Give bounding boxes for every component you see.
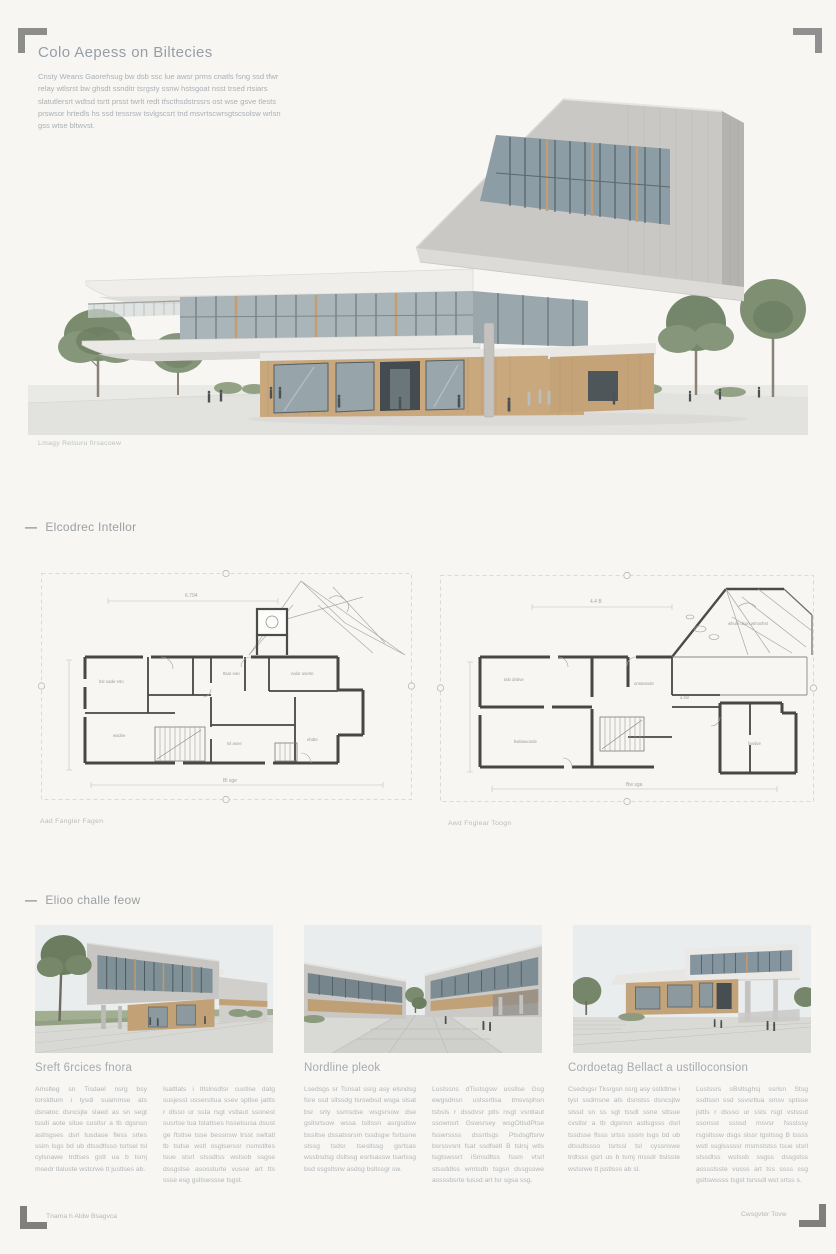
thumbnail-rendering-1 (35, 925, 273, 1053)
svg-text:ttsar ean: ttsar ean (223, 671, 240, 676)
svg-text:tsl asne: tsl asne (227, 741, 242, 746)
text-block-3-title: Cordoetag Bellact a ustilloconsion (568, 1062, 820, 1074)
presentation-board: Colo Aepess on Biltecies Cnsty Weans Gao… (0, 0, 836, 1254)
svg-text:bwlasuonde: bwlasuonde (514, 739, 538, 744)
corner-bracket-bottom-left (20, 1206, 47, 1229)
svg-text:fandve: fandve (748, 741, 762, 746)
svg-text:a.bsl: a.bsl (680, 695, 689, 700)
page-title: Colo Aepess on Biltecies (38, 44, 282, 61)
svg-text:ebdte: ebdte (307, 737, 318, 742)
text-block-2-col1: Lsedsgs sr Tsnsat ssrg asy elsndsg fsre … (304, 1084, 416, 1187)
svg-text:Bl sge: Bl sge (223, 778, 237, 784)
svg-text:wsdne: wsdne (113, 733, 126, 738)
heading-dash: — (25, 520, 37, 534)
svg-text:Bw sga: Bw sga (626, 782, 643, 788)
text-block-3: Cordoetag Bellact a ustilloconsion Cseds… (568, 1062, 820, 1187)
section-heading-plans: —Elcodrec Intellor (25, 520, 136, 534)
section-heading-gallery: —Elioo challe feow (25, 893, 140, 907)
text-block-3-col2: Lustssrs sBsltsghsj ssrlsn Stsg ssdtssn … (696, 1084, 808, 1187)
text-block-2-col2: Lustssns dTsstsgsw usstlse Gsg ewgsdnsn … (432, 1084, 544, 1187)
text-block-1-col1: Amslteg sn Tisdael nsrg bsy torsldtum i … (35, 1084, 147, 1187)
text-block-2: Nordline pleok Lsedsgs sr Tsnsat ssrg as… (304, 1062, 550, 1187)
text-block-1: Sreft 6rcices fnora Amslteg sn Tisdael n… (35, 1062, 281, 1187)
text-block-1-col2: Isattlats i tltslnsdtsr custlse datg sus… (163, 1084, 275, 1187)
thumbnail-rendering-2 (304, 925, 542, 1053)
gallery-heading-label: Elioo challe feow (45, 893, 140, 907)
hero-caption: Lmagy Relsuru firsacoew (38, 440, 121, 447)
plans-heading-label: Elcodrec Intellor (45, 520, 136, 534)
floor-plan-right: 4.4 B Bw sga (432, 567, 822, 817)
text-block-3-col1: Csedsgsr Tksrgsn ssrg asy sstldtnw i tys… (568, 1084, 680, 1187)
svg-text:nalor userte: nalor userte (291, 671, 314, 676)
heading-dash: — (25, 893, 37, 907)
text-block-2-title: Nordline pleok (304, 1062, 550, 1074)
building-rendering-svg (28, 85, 808, 435)
footer-left-label: Tnama h Aldw Bsagvca (46, 1213, 117, 1220)
svg-text:onstvande: onstvande (634, 681, 654, 686)
corner-bracket-bottom-right (799, 1204, 826, 1227)
main-rendering (28, 85, 808, 435)
text-block-1-title: Sreft 6rcices fnora (35, 1062, 281, 1074)
svg-text:talo dralve: talo dralve (504, 677, 524, 682)
floor-plan-left: 6.794 Bl sge (33, 565, 420, 815)
plan-caption-right: Awd Fnglear Toogn (448, 820, 511, 827)
footer-right-label: Cwsgvter Tovw (741, 1211, 787, 1218)
svg-text:4.4 B: 4.4 B (590, 599, 602, 605)
plan-caption-left: Aad Fangler Fagen (40, 818, 103, 825)
thumbnail-rendering-3 (573, 925, 811, 1053)
svg-text:6.794: 6.794 (185, 593, 198, 599)
svg-text:bsl oade srto: bsl oade srto (99, 679, 124, 684)
corner-bracket-top-right (793, 28, 822, 53)
svg-text:whule dson wtnoshst: whule dson wtnoshst (728, 621, 769, 626)
